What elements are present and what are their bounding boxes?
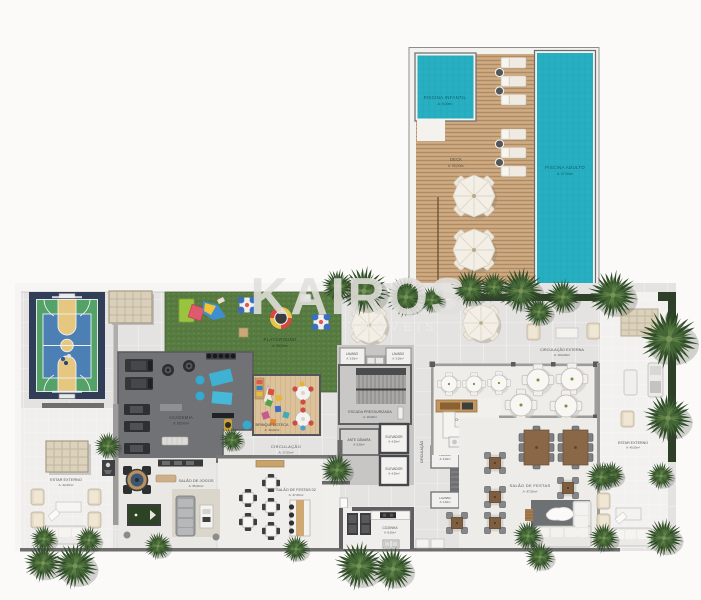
svg-text:A: 45,00m²: A: 45,00m² bbox=[626, 446, 640, 450]
svg-text:A: 4,00m²: A: 4,00m² bbox=[388, 472, 399, 476]
svg-text:A: 42,00m²: A: 42,00m² bbox=[59, 483, 74, 487]
svg-text:COZINHA: COZINHA bbox=[382, 526, 398, 530]
svg-text:A: 4,00m²: A: 4,00m² bbox=[388, 440, 399, 444]
svg-text:KAIROS: KAIROS bbox=[250, 268, 467, 326]
svg-text:ESTAR EXTERNO: ESTAR EXTERNO bbox=[618, 441, 648, 445]
svg-text:ELEVADOR: ELEVADOR bbox=[385, 435, 403, 439]
svg-text:SALÃO DE FESTAS 02: SALÃO DE FESTAS 02 bbox=[276, 487, 316, 492]
svg-text:A: 2,00m²: A: 2,00m² bbox=[440, 501, 451, 504]
svg-text:ELEVADOR: ELEVADOR bbox=[385, 467, 403, 471]
svg-text:A: 16,00m²: A: 16,00m² bbox=[363, 415, 377, 419]
svg-text:A: 47,00m²: A: 47,00m² bbox=[289, 493, 304, 497]
svg-text:ESCADA PRESSURIZADA: ESCADA PRESSURIZADA bbox=[348, 410, 392, 414]
svg-text:A: 3,00m²: A: 3,00m² bbox=[440, 458, 451, 461]
svg-text:CIRCULAÇÃO: CIRCULAÇÃO bbox=[271, 444, 301, 449]
svg-text:A: 3,00m²: A: 3,00m² bbox=[346, 357, 357, 361]
svg-text:PISCINA ADULTO: PISCINA ADULTO bbox=[545, 165, 585, 170]
svg-text:A: 3,00m²: A: 3,00m² bbox=[392, 357, 403, 361]
svg-text:A: 47,00m²: A: 47,00m² bbox=[557, 172, 574, 176]
svg-text:CIRCULAÇÃO: CIRCULAÇÃO bbox=[419, 441, 424, 464]
svg-text:A: 95,00m²: A: 95,00m² bbox=[448, 164, 465, 168]
svg-text:PLAYGROUND: PLAYGROUND bbox=[263, 337, 296, 342]
svg-text:A: 17,00m²: A: 17,00m² bbox=[279, 451, 294, 455]
svg-text:ANTE CÂMARA: ANTE CÂMARA bbox=[347, 438, 371, 442]
svg-text:CIRCULAÇÃO EXTERNA: CIRCULAÇÃO EXTERNA bbox=[540, 347, 584, 352]
svg-text:LAVABO: LAVABO bbox=[439, 496, 451, 500]
svg-text:SALÃO DE JOGOS: SALÃO DE JOGOS bbox=[178, 478, 213, 483]
svg-text:LAVABO: LAVABO bbox=[392, 352, 405, 356]
svg-text:IMÓVEIS: IMÓVEIS bbox=[351, 319, 438, 334]
svg-text:A: 8,00m²: A: 8,00m² bbox=[384, 531, 396, 535]
svg-text:ESTAR EXTERNO: ESTAR EXTERNO bbox=[50, 478, 82, 482]
svg-text:A: 98,00m²: A: 98,00m² bbox=[272, 344, 288, 348]
svg-text:A: 55,00m²: A: 55,00m² bbox=[189, 484, 204, 488]
svg-text:DECK: DECK bbox=[450, 157, 462, 162]
svg-text:A: 97,00m²: A: 97,00m² bbox=[523, 490, 538, 494]
svg-text:A: 65,00m²: A: 65,00m² bbox=[173, 422, 189, 426]
svg-text:A: 40,00m²: A: 40,00m² bbox=[265, 428, 280, 432]
svg-text:A: 160,00m²: A: 160,00m² bbox=[554, 353, 570, 357]
svg-text:BRINQUEDOTECA: BRINQUEDOTECA bbox=[255, 423, 289, 427]
svg-text:LAVABO: LAVABO bbox=[346, 352, 359, 356]
svg-text:A: 5,00m²: A: 5,00m² bbox=[353, 443, 364, 447]
svg-text:ACADEMIA: ACADEMIA bbox=[169, 415, 193, 420]
svg-text:A: 9,00m²: A: 9,00m² bbox=[438, 102, 454, 106]
svg-text:SALÃO DE FESTAS: SALÃO DE FESTAS bbox=[510, 483, 551, 488]
svg-text:PISCINA INFANTIL: PISCINA INFANTIL bbox=[424, 95, 467, 100]
